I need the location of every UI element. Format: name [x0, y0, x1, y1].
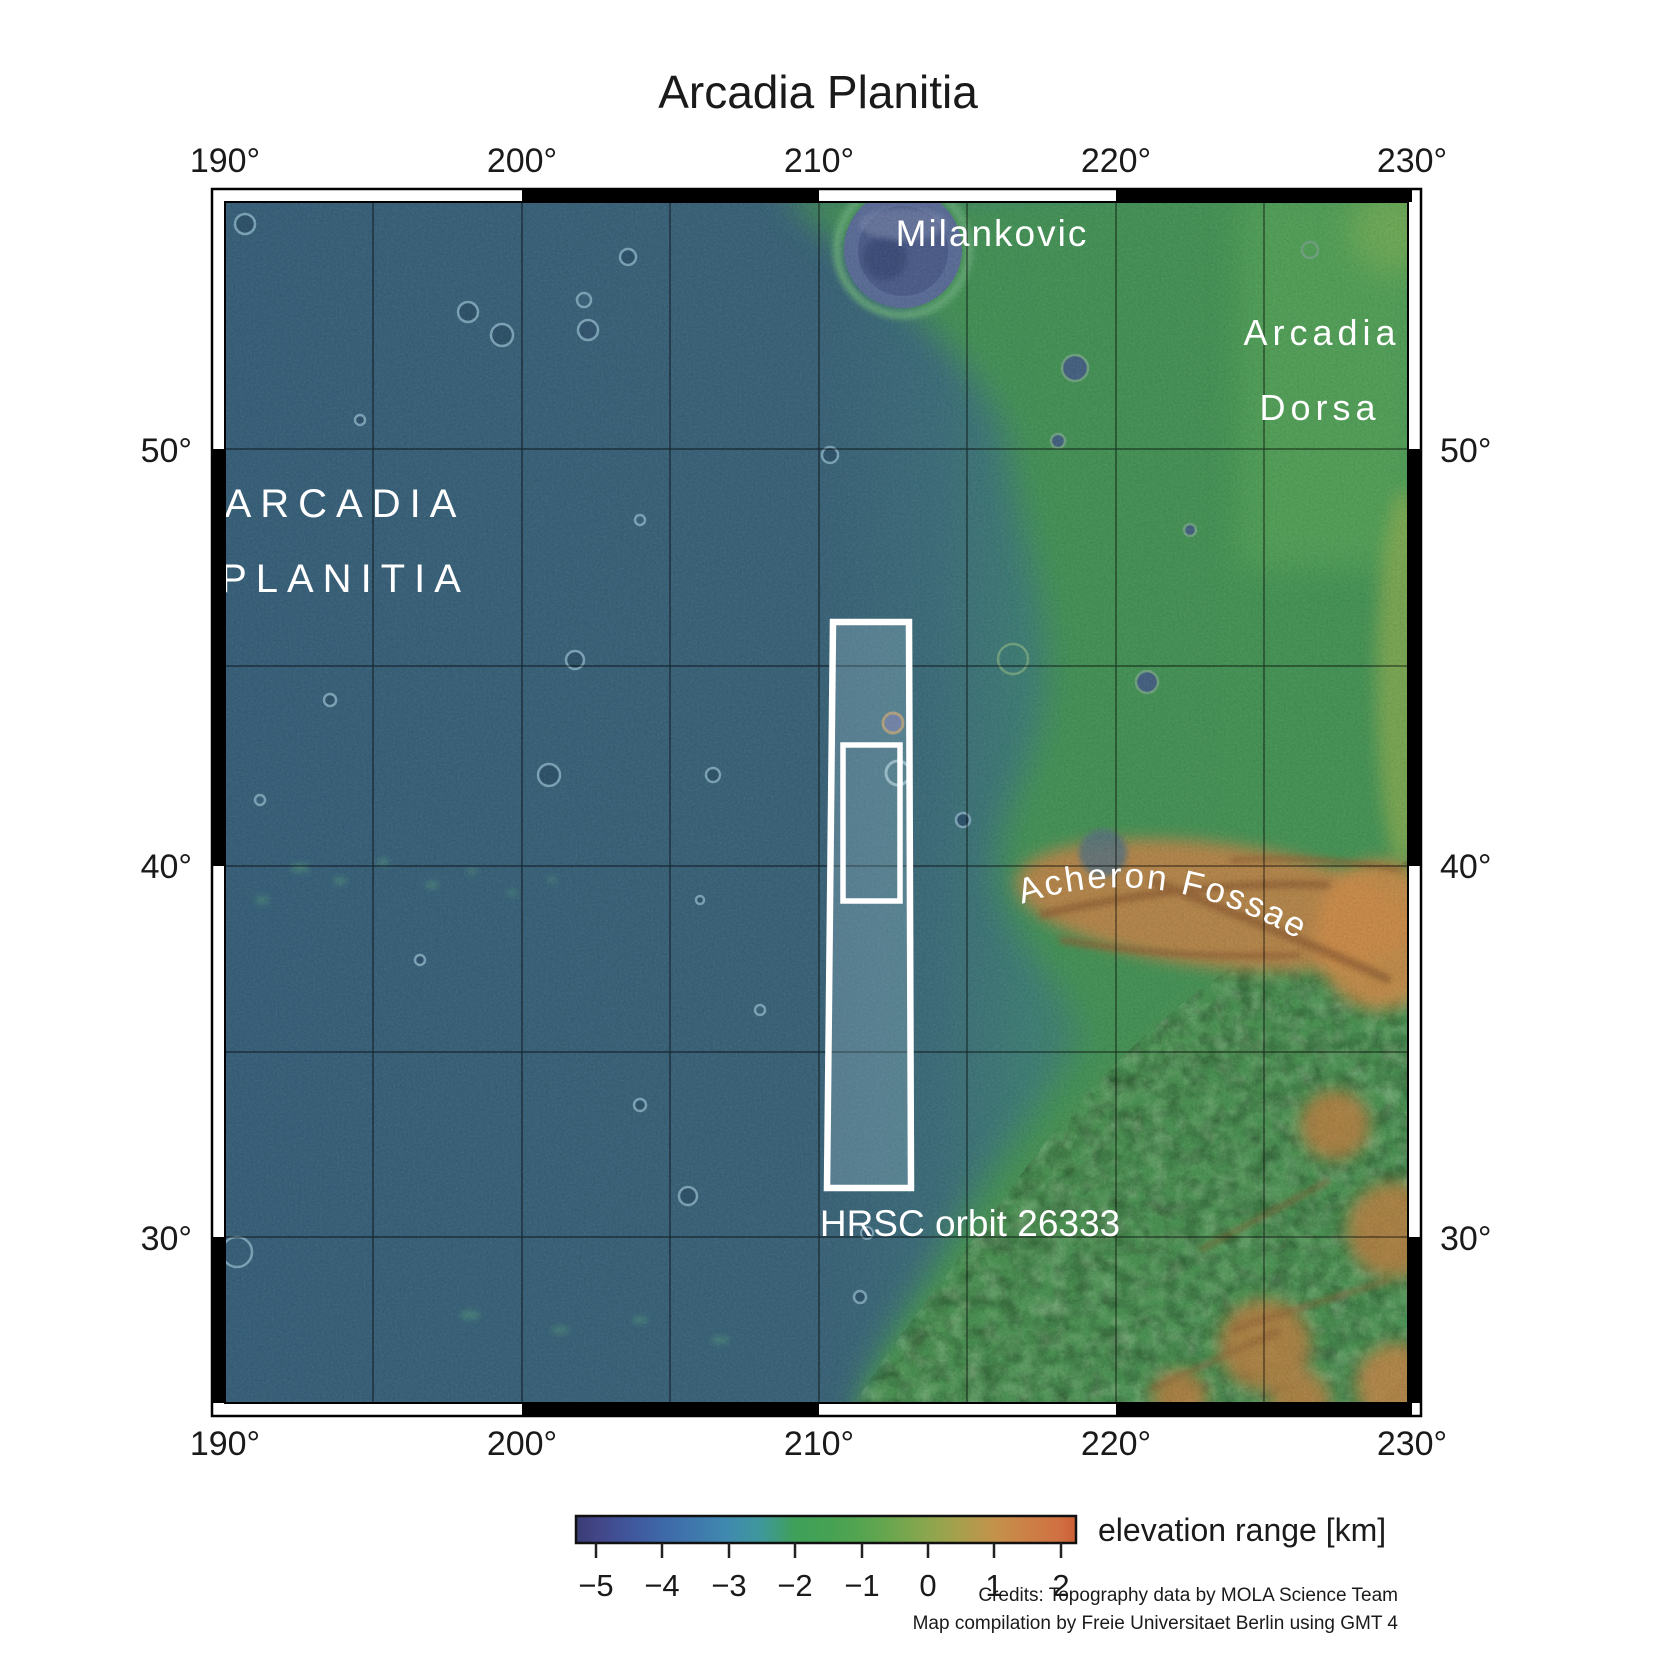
lat-tick-label: 40°: [1440, 848, 1491, 886]
lon-tick-label: 190°: [190, 1425, 260, 1463]
lat-tick-label: 50°: [141, 432, 192, 470]
lon-tick-label: 230°: [1377, 1425, 1447, 1463]
label-arcadia-planitia-1: ARCADIA: [225, 482, 466, 526]
credits-line-2: Map compilation by Freie Universitaet Be…: [913, 1613, 1399, 1634]
cbar-tick-label: 0: [919, 1568, 936, 1603]
lat-tick-label: 50°: [1440, 432, 1491, 470]
cbar-tick-label: −4: [644, 1568, 679, 1603]
lon-tick-label: 220°: [1081, 1425, 1151, 1463]
credits: Credits: Topography data by MOLA Science…: [913, 1585, 1399, 1634]
lat-tick-label: 30°: [141, 1220, 192, 1258]
cbar-tick-label: −3: [711, 1568, 746, 1603]
map-title: Arcadia Planitia: [658, 66, 978, 118]
colorbar-label: elevation range [km]: [1098, 1512, 1386, 1548]
mars-map-figure: Milankovic Arcadia Dorsa ARCADIA PLANITI…: [0, 0, 1653, 1679]
lon-tick-label: 220°: [1081, 142, 1151, 180]
hillshade-noise-light: [225, 202, 1408, 1403]
cbar-tick-label: −5: [578, 1568, 613, 1603]
map-canvas: Milankovic Arcadia Dorsa ARCADIA PLANITI…: [0, 0, 1653, 1679]
label-arcadia-dorsa-1: Arcadia: [1243, 312, 1400, 353]
hrsc-strip: [827, 622, 911, 1188]
label-arcadia-dorsa-2: Dorsa: [1259, 387, 1380, 428]
lon-labels-bottom: 190° 200° 210° 220° 230°: [190, 1425, 1447, 1463]
credits-line-1: Credits: Topography data by MOLA Science…: [978, 1585, 1398, 1606]
lon-tick-label: 210°: [784, 1425, 854, 1463]
lat-tick-label: 40°: [141, 848, 192, 886]
cbar-tick-label: −2: [777, 1568, 812, 1603]
terrain: Milankovic Arcadia Dorsa ARCADIA PLANITI…: [220, 183, 1445, 1430]
hrsc-orbit-outline: [827, 622, 911, 1188]
colorbar-gradient-bar: [576, 1516, 1076, 1543]
lat-labels-left: 50° 40° 30°: [141, 432, 192, 1258]
label-arcadia-planitia-2: PLANITIA: [220, 557, 470, 601]
lon-labels-top: 190° 200° 210° 220° 230°: [190, 142, 1447, 180]
label-hrsc-orbit: HRSC orbit 26333: [820, 1203, 1120, 1244]
lat-tick-label: 30°: [1440, 1220, 1491, 1258]
lon-tick-label: 210°: [784, 142, 854, 180]
cbar-tick-label: −1: [844, 1568, 879, 1603]
lon-tick-label: 200°: [487, 1425, 557, 1463]
lon-tick-label: 200°: [487, 142, 557, 180]
lon-tick-label: 190°: [190, 142, 260, 180]
label-milankovic: Milankovic: [896, 213, 1089, 254]
lon-tick-label: 230°: [1377, 142, 1447, 180]
colorbar-ticks: [596, 1543, 1061, 1558]
lat-labels-right: 50° 40° 30°: [1440, 432, 1491, 1258]
